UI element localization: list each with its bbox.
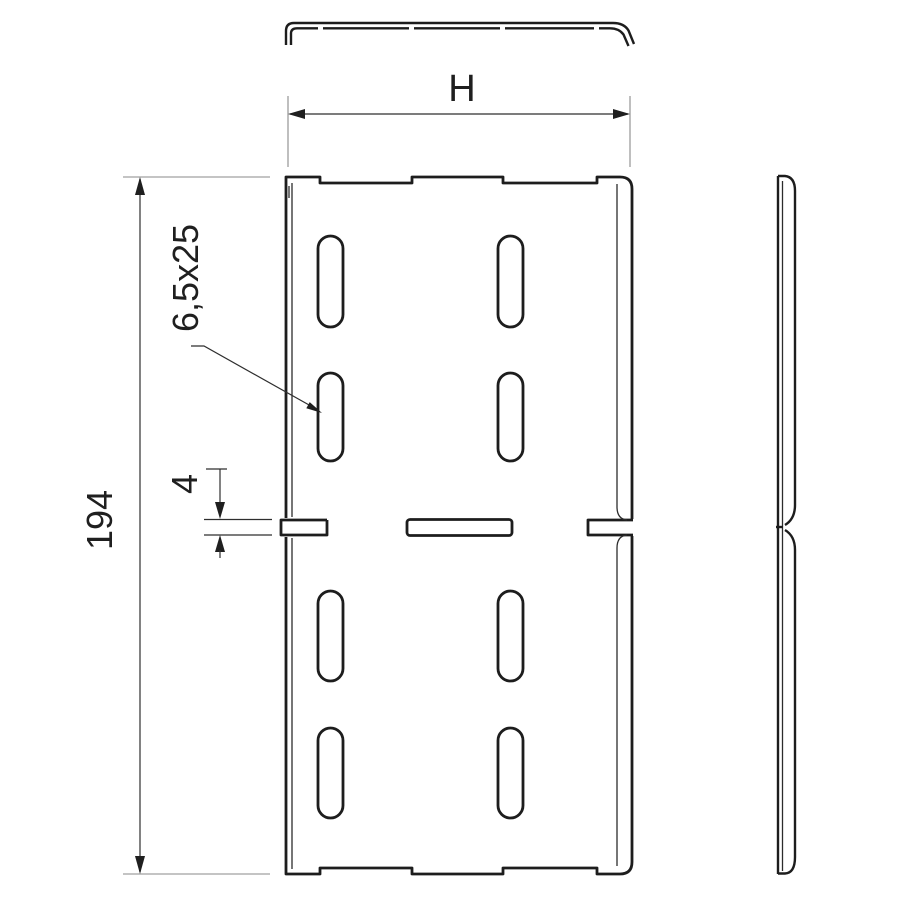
slot-hole — [318, 236, 343, 327]
plate-outline-lower — [286, 536, 632, 874]
left-mid-slit — [281, 520, 327, 535]
arrowhead-up — [215, 535, 225, 552]
top-profile-outer-line — [286, 23, 634, 45]
center-mid-slot — [407, 520, 512, 536]
slot-size-callout: 6,5x25 — [165, 224, 322, 413]
right-flange-line-upper — [617, 184, 627, 520]
slot-hole — [498, 373, 523, 461]
notch-break-mark — [318, 26, 323, 31]
leader-line — [191, 346, 318, 410]
drawing-canvas: H — [0, 0, 900, 900]
arrowhead-right — [613, 109, 630, 119]
slot-hole — [318, 591, 343, 681]
slot-holes — [318, 236, 523, 818]
slot-size-label: 6,5x25 — [165, 224, 206, 332]
side-top-cap — [778, 176, 795, 191]
side-flange-upper — [785, 191, 795, 525]
slot-hole — [318, 373, 343, 461]
gap-dimension-4: 4 — [164, 469, 272, 558]
side-profile-view — [776, 176, 795, 874]
slot-hole — [498, 591, 523, 681]
drawing-page: H — [0, 0, 900, 900]
right-mid-slit — [588, 520, 633, 535]
width-dimension-h: H — [288, 68, 630, 167]
arrowhead-down — [215, 502, 225, 519]
arrowhead-left — [288, 109, 305, 119]
arrowhead-down — [135, 856, 145, 874]
height-dimension-label: 194 — [79, 490, 120, 550]
side-bottom-cap — [778, 857, 795, 874]
slot-hole — [318, 728, 343, 818]
side-flange-lower — [785, 530, 795, 857]
slot-hole — [498, 236, 523, 327]
width-dimension-label: H — [448, 68, 475, 110]
slot-hole — [498, 728, 523, 818]
gap-dimension-label: 4 — [164, 474, 205, 494]
front-view — [281, 177, 633, 874]
notch-break-mark — [409, 26, 414, 31]
top-profile-inner-line — [291, 28, 629, 46]
right-flange-line-lower — [617, 535, 627, 866]
arrowhead-up — [135, 177, 145, 195]
plate-outline-upper — [286, 177, 632, 519]
top-profile-view — [286, 23, 634, 46]
notch-break-mark — [594, 26, 599, 31]
notch-break-mark — [500, 26, 505, 31]
leader-arrowhead — [306, 402, 322, 413]
